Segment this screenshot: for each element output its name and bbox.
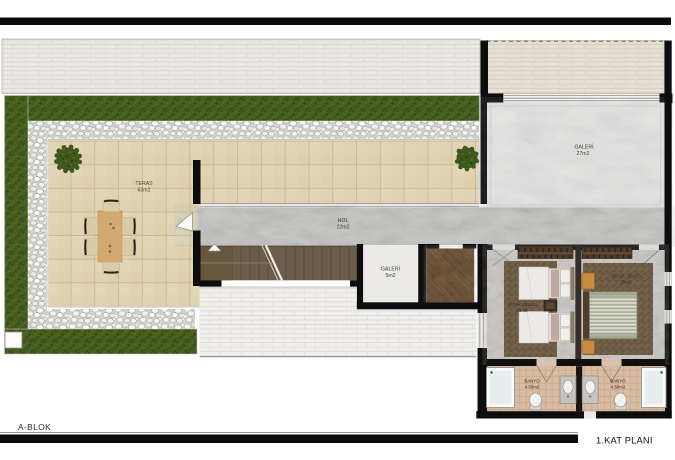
- svg-text:5m2: 5m2: [385, 273, 395, 279]
- svg-text:GALERİ: GALERİ: [574, 144, 593, 151]
- svg-text:4.50m2: 4.50m2: [611, 385, 626, 390]
- svg-text:4.50m2: 4.50m2: [525, 385, 540, 390]
- svg-text:22m2: 22m2: [337, 225, 350, 231]
- svg-text:GALERİ: GALERİ: [381, 266, 400, 273]
- svg-text:27m2: 27m2: [577, 151, 590, 157]
- svg-text:YATAK ODASI: YATAK ODASI: [611, 274, 641, 279]
- svg-text:A-BLOK: A-BLOK: [18, 422, 51, 432]
- svg-text:TERAS: TERAS: [135, 181, 153, 187]
- svg-text:1.KAT PLANI: 1.KAT PLANI: [596, 436, 653, 446]
- svg-text:63m2: 63m2: [138, 188, 151, 194]
- svg-text:BANYO: BANYO: [610, 379, 626, 384]
- svg-text:BANYO: BANYO: [524, 379, 540, 384]
- svg-text:15m2: 15m2: [620, 280, 632, 285]
- svg-text:15m2: 15m2: [516, 308, 528, 313]
- svg-text:YATAK ODASI: YATAK ODASI: [507, 302, 537, 307]
- svg-text:HOL: HOL: [338, 218, 349, 224]
